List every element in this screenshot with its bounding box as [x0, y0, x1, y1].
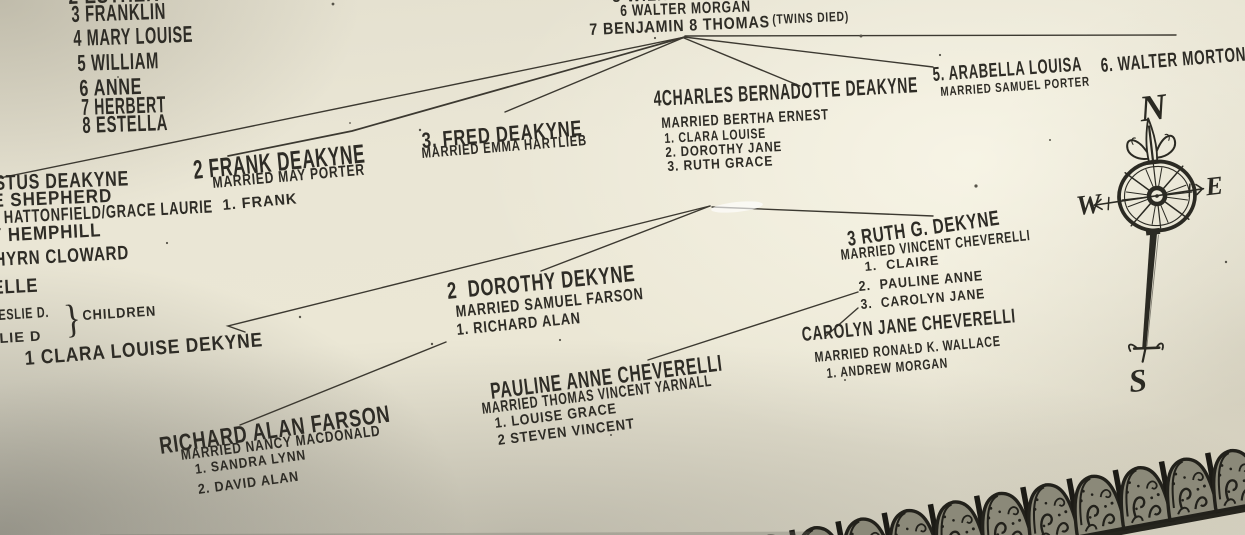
svg-text:S: S — [1127, 361, 1149, 399]
svg-text:E: E — [1203, 171, 1225, 202]
svg-text:W: W — [1074, 188, 1104, 222]
svg-text:N: N — [1136, 86, 1169, 130]
